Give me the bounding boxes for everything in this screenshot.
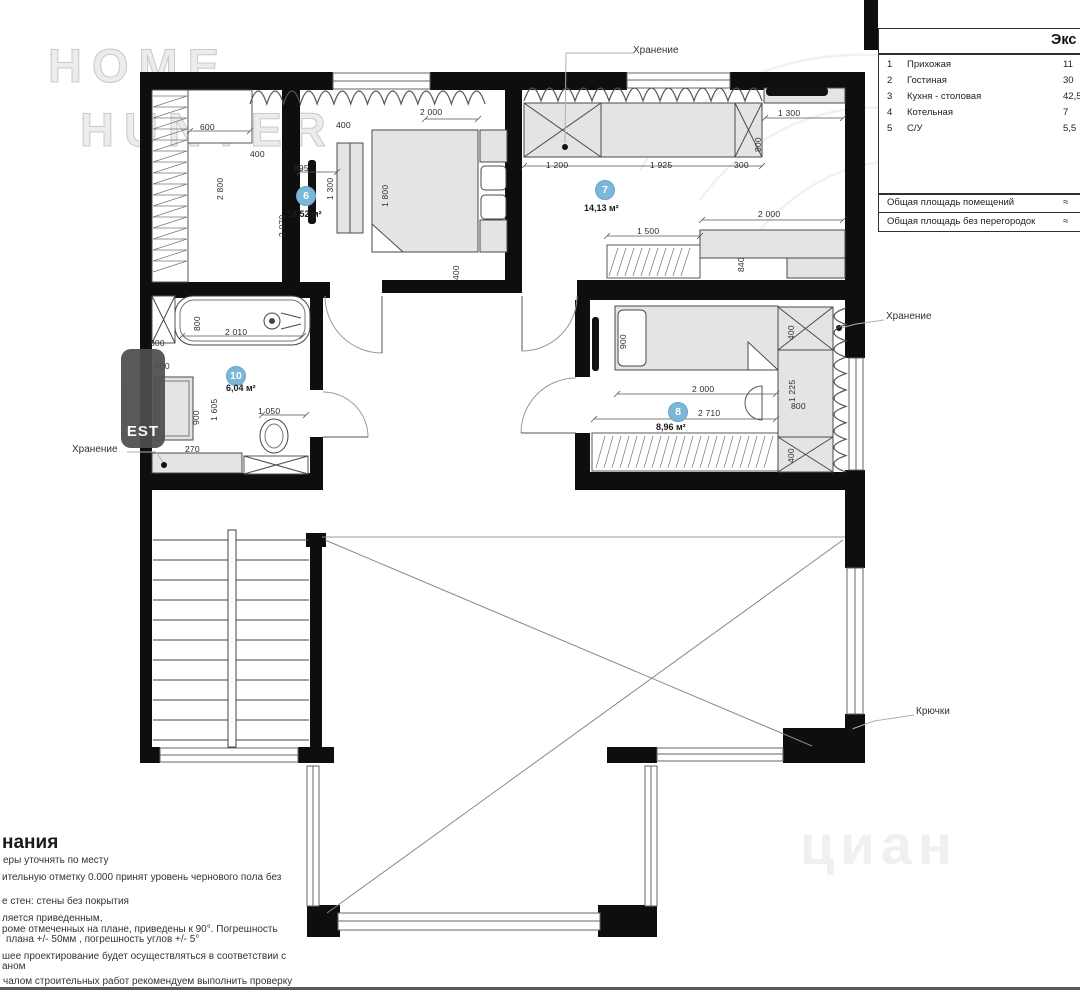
pillow-room6-2 <box>481 195 506 219</box>
table-cell: 30 <box>1063 75 1074 86</box>
note-line: е стен: стены без покрытия <box>2 896 129 907</box>
tv-room7 <box>766 87 828 96</box>
table-row: 3Кухня - столовая42,5 <box>879 91 1080 106</box>
bathroom-area: 6,04 м² <box>226 383 256 393</box>
table-cell: 11 <box>1063 59 1073 70</box>
bottom-separator <box>0 987 1080 990</box>
note-line: аном <box>2 961 26 972</box>
void-cross <box>322 537 845 913</box>
wall-hooks-corner <box>783 728 865 763</box>
dimension-label: 900 <box>191 410 201 425</box>
est-logo-text: EST <box>127 423 159 440</box>
desk-room7-return <box>787 258 845 278</box>
dimension-label: 1 225 <box>787 380 797 402</box>
note-line: ляется приведенным, <box>2 913 103 924</box>
dimension-label: 1 200 <box>546 160 568 170</box>
dimension-label: 400 <box>451 265 461 280</box>
room-8-area: 8,96 м² <box>656 422 686 432</box>
note-line: еры уточнять по месту <box>3 855 109 866</box>
table-cell: Гостиная <box>907 75 947 86</box>
table-cell: 3 <box>887 91 892 102</box>
dimension-label: 1 925 <box>650 160 672 170</box>
table-footer-divider <box>879 212 1080 213</box>
dimension-label: 1 050 <box>258 406 280 416</box>
room-8-number-badge: 8 <box>668 402 688 422</box>
footer-label: Общая площадь помещений <box>887 197 1014 208</box>
dimension-label: 300 <box>150 338 165 348</box>
window-top-right <box>627 73 730 88</box>
dimension-label: 2 000 <box>420 107 442 117</box>
storage-label-top: Хранение <box>633 45 679 56</box>
dimension-label: 840 <box>736 257 746 272</box>
nightstand-room6-bottom <box>480 220 507 252</box>
table-cell: Котельная <box>907 107 953 118</box>
dimension-label: 800 <box>791 401 806 411</box>
dimension-label: 1 300 <box>778 108 800 118</box>
window-stair-bottom <box>160 748 298 762</box>
tv-room8 <box>592 317 599 371</box>
wall-stair-right <box>310 533 322 763</box>
door-bathroom <box>323 392 368 437</box>
dimension-label: 1 605 <box>209 399 219 421</box>
dimension-label: 895 <box>294 163 309 173</box>
dimension-label: 800 <box>753 137 763 152</box>
table-header-rule <box>879 53 1080 55</box>
window-room8-right <box>849 358 863 470</box>
table-cell: 5 <box>887 123 892 134</box>
door-room8 <box>521 378 576 433</box>
note-line: чалом строительных работ рекомендуем вып… <box>3 976 292 987</box>
closet-600 <box>188 90 252 143</box>
window-void-right <box>847 568 863 714</box>
dimension-label: 2 010 <box>225 327 247 337</box>
dimension-label: 800 <box>192 316 202 331</box>
pillow-room6-1 <box>481 166 506 190</box>
dimension-label: 1 800 <box>380 185 390 207</box>
window-bay-bottom <box>338 913 600 930</box>
dimension-label: 270 <box>185 444 200 454</box>
table-cell: 5,5 <box>1063 123 1076 134</box>
table-row: 1Прихожая11 <box>879 59 1080 74</box>
table-cell: 42,5 <box>1063 91 1080 102</box>
floorplan-page: HOME HUNTER циан <box>0 0 1080 996</box>
dimension-label: 300 <box>734 160 749 170</box>
table-cell: 1 <box>887 59 892 70</box>
table-title: Экс <box>1051 32 1076 48</box>
table-cell: 7 <box>1063 107 1068 118</box>
dimension-label: 2 800 <box>215 178 225 200</box>
dimension-label: 1 300 <box>325 178 335 200</box>
hooks-label: Крючки <box>916 706 950 717</box>
dimension-label: 900 <box>618 334 628 349</box>
footer-label: Общая площадь без перегородок <box>887 216 1035 227</box>
dimension-label: 400 <box>250 149 265 159</box>
footer-value: ≈ <box>1063 197 1068 208</box>
explication-table: Экс 1Прихожая112Гостиная303Кухня - столо… <box>878 28 1080 232</box>
door-arcs <box>323 296 577 437</box>
note-line: шее проектирование будет осуществляться … <box>2 951 286 962</box>
est-logo-watermark: EST <box>121 349 165 448</box>
table-cell: С/У <box>907 123 923 134</box>
wall-room6-room7 <box>505 72 522 293</box>
table-cell: 2 <box>887 75 892 86</box>
dimension-label: 2 070 <box>277 215 287 237</box>
storage-label-left: Хранение <box>72 444 118 455</box>
room-7-number-badge: 7 <box>595 180 615 200</box>
table-footer-rule <box>879 193 1080 195</box>
note-line: плана +/- 50мм , погрешность углов +/- 5… <box>6 934 199 945</box>
table-cell: 4 <box>887 107 892 118</box>
window-top-left <box>333 73 430 89</box>
table-row: 5С/У5,5 <box>879 123 1080 138</box>
footer-value: ≈ <box>1063 216 1068 227</box>
door-room7 <box>522 296 577 351</box>
desk-room7 <box>700 230 845 258</box>
chair-room8 <box>745 386 762 420</box>
storage-label-right: Хранение <box>886 311 932 322</box>
note-line: ительную отметку 0.000 принят уровень че… <box>2 872 281 883</box>
nightstand-room6-top <box>480 130 507 162</box>
window-bottom-right <box>657 748 783 761</box>
dimension-label: 400 <box>786 325 796 340</box>
table-cell: Кухня - столовая <box>907 91 981 102</box>
dimension-label: 400 <box>336 120 351 130</box>
window-bay-left <box>307 766 319 906</box>
room-6-number-badge: 6 <box>296 186 316 206</box>
wardrobe-room7 <box>524 103 762 157</box>
dimension-label: 2 000 <box>758 209 780 219</box>
room-7-area: 14,13 м² <box>584 203 619 213</box>
dimension-label: 1 500 <box>637 226 659 236</box>
room-6-area: 14,52 м² <box>287 209 322 219</box>
notes-heading: нания <box>2 832 58 854</box>
stair-upper-flight <box>152 90 188 282</box>
dimension-label: 600 <box>200 122 215 132</box>
table-row: 4Котельная7 <box>879 107 1080 122</box>
dimension-label: 2 000 <box>692 384 714 394</box>
door-room6 <box>325 296 382 353</box>
window-bay-right <box>645 766 657 906</box>
frame-stub <box>864 0 878 50</box>
table-cell: Прихожая <box>907 59 951 70</box>
dimension-label: 2 710 <box>698 408 720 418</box>
stair-stringer <box>228 530 236 747</box>
table-row: 2Гостиная30 <box>879 75 1080 90</box>
dimension-label: 400 <box>786 448 796 463</box>
